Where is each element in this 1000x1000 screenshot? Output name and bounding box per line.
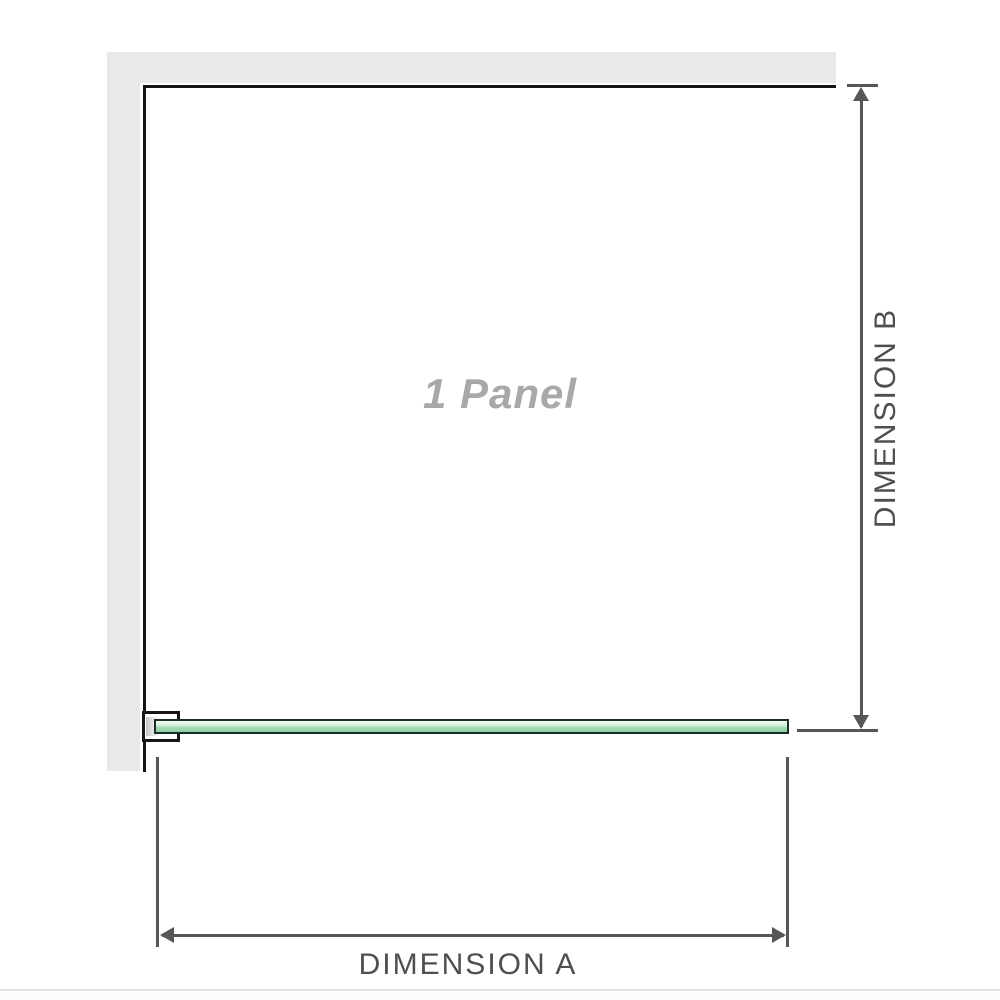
arrow-left-icon [160,927,174,943]
panel-outline-left [143,85,146,772]
arrow-up-icon [853,87,869,101]
panel-outline-top [143,85,836,88]
dimension-b-label: DIMENSION B [866,218,906,618]
dimension-a-right-extension [786,757,789,947]
wall-top-bar [107,52,836,83]
dimension-a-left-extension [156,757,159,947]
glass-panel [154,719,789,734]
footer-strip [0,991,1000,1000]
panel-count-label: 1 Panel [300,370,700,418]
arrow-right-icon [772,927,786,943]
dimension-b-bottom-cap [797,729,878,732]
shower-panel-diagram: 1 Panel DIMENSION B DIMENSION A [0,0,1000,1000]
dimension-b-line [860,90,863,727]
arrow-down-icon [853,715,869,729]
wall-left-bar [107,52,140,771]
dimension-a-line [162,934,784,937]
dimension-a-label: DIMENSION A [268,948,668,982]
